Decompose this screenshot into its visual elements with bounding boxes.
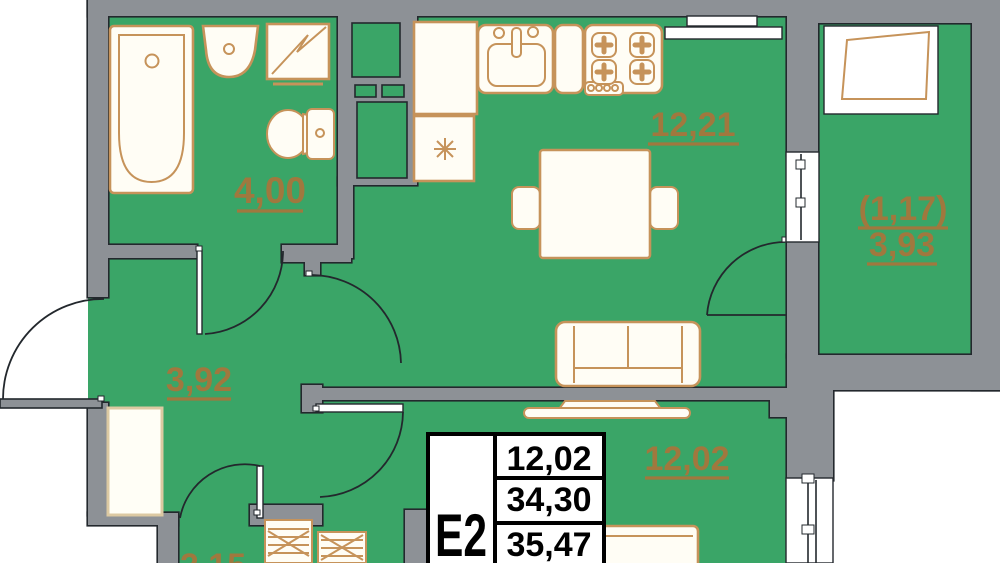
unit-spec-table: E2 12,02 34,30 35,47 [428, 434, 604, 563]
wall-segment [338, 178, 353, 258]
washing-machine [267, 24, 329, 84]
hall-closet [108, 408, 162, 515]
hall-area-label: 3,92 [166, 361, 232, 399]
bedroom-area-label: 12,02 [644, 440, 729, 478]
unit-total-area: 35,47 [506, 526, 591, 563]
wall-segment [790, 0, 1000, 23]
wall-segment [787, 390, 833, 480]
wall-segment [158, 513, 178, 563]
bed [600, 526, 698, 563]
balcony-door [786, 152, 819, 242]
bedroom-window [786, 474, 833, 563]
dining-table [540, 150, 650, 258]
chair [650, 187, 678, 229]
fridge-asterisk-icon [434, 138, 456, 160]
wall-segment [310, 388, 790, 400]
entry-door-leaf [0, 399, 102, 408]
balcony-reduced-area-label: (1,17) [859, 190, 948, 228]
wardrobe [265, 520, 312, 563]
entry-opening-floor [88, 297, 108, 403]
unit-living-area: 34,30 [506, 481, 591, 519]
balcony-window [824, 26, 938, 114]
sofa [556, 322, 700, 386]
wall-segment [88, 0, 108, 297]
unit-label: E2 [435, 502, 487, 563]
kitchen-window-sill [665, 27, 782, 39]
bedroom-door-leaf [316, 404, 403, 412]
kitchen-sink [488, 27, 545, 86]
floor-plan: 4,00 12,21 (1,17) 3,93 3,92 12,02 2,15 E… [0, 0, 1000, 563]
kitchen-living-area-label: 12,21 [650, 106, 735, 144]
wardrobe [318, 532, 366, 563]
chair [512, 187, 540, 229]
bathroom-area-label: 4,00 [234, 170, 306, 211]
wall-segment [972, 16, 1000, 390]
bathtub [110, 26, 193, 193]
wall-segment [787, 355, 1000, 390]
wall-segment [88, 403, 108, 515]
wall-segment [107, 245, 197, 258]
bathroom-door-leaf [197, 250, 202, 334]
toilet [267, 109, 334, 159]
unit-room-area: 12,02 [506, 440, 591, 478]
kitchen-window [687, 16, 757, 26]
wall-segment [770, 395, 787, 417]
storage-area-label: 2,15 [180, 547, 246, 563]
balcony-area-label: 3,93 [869, 226, 935, 264]
wall-segment [787, 240, 818, 357]
wall-segment [787, 16, 818, 155]
